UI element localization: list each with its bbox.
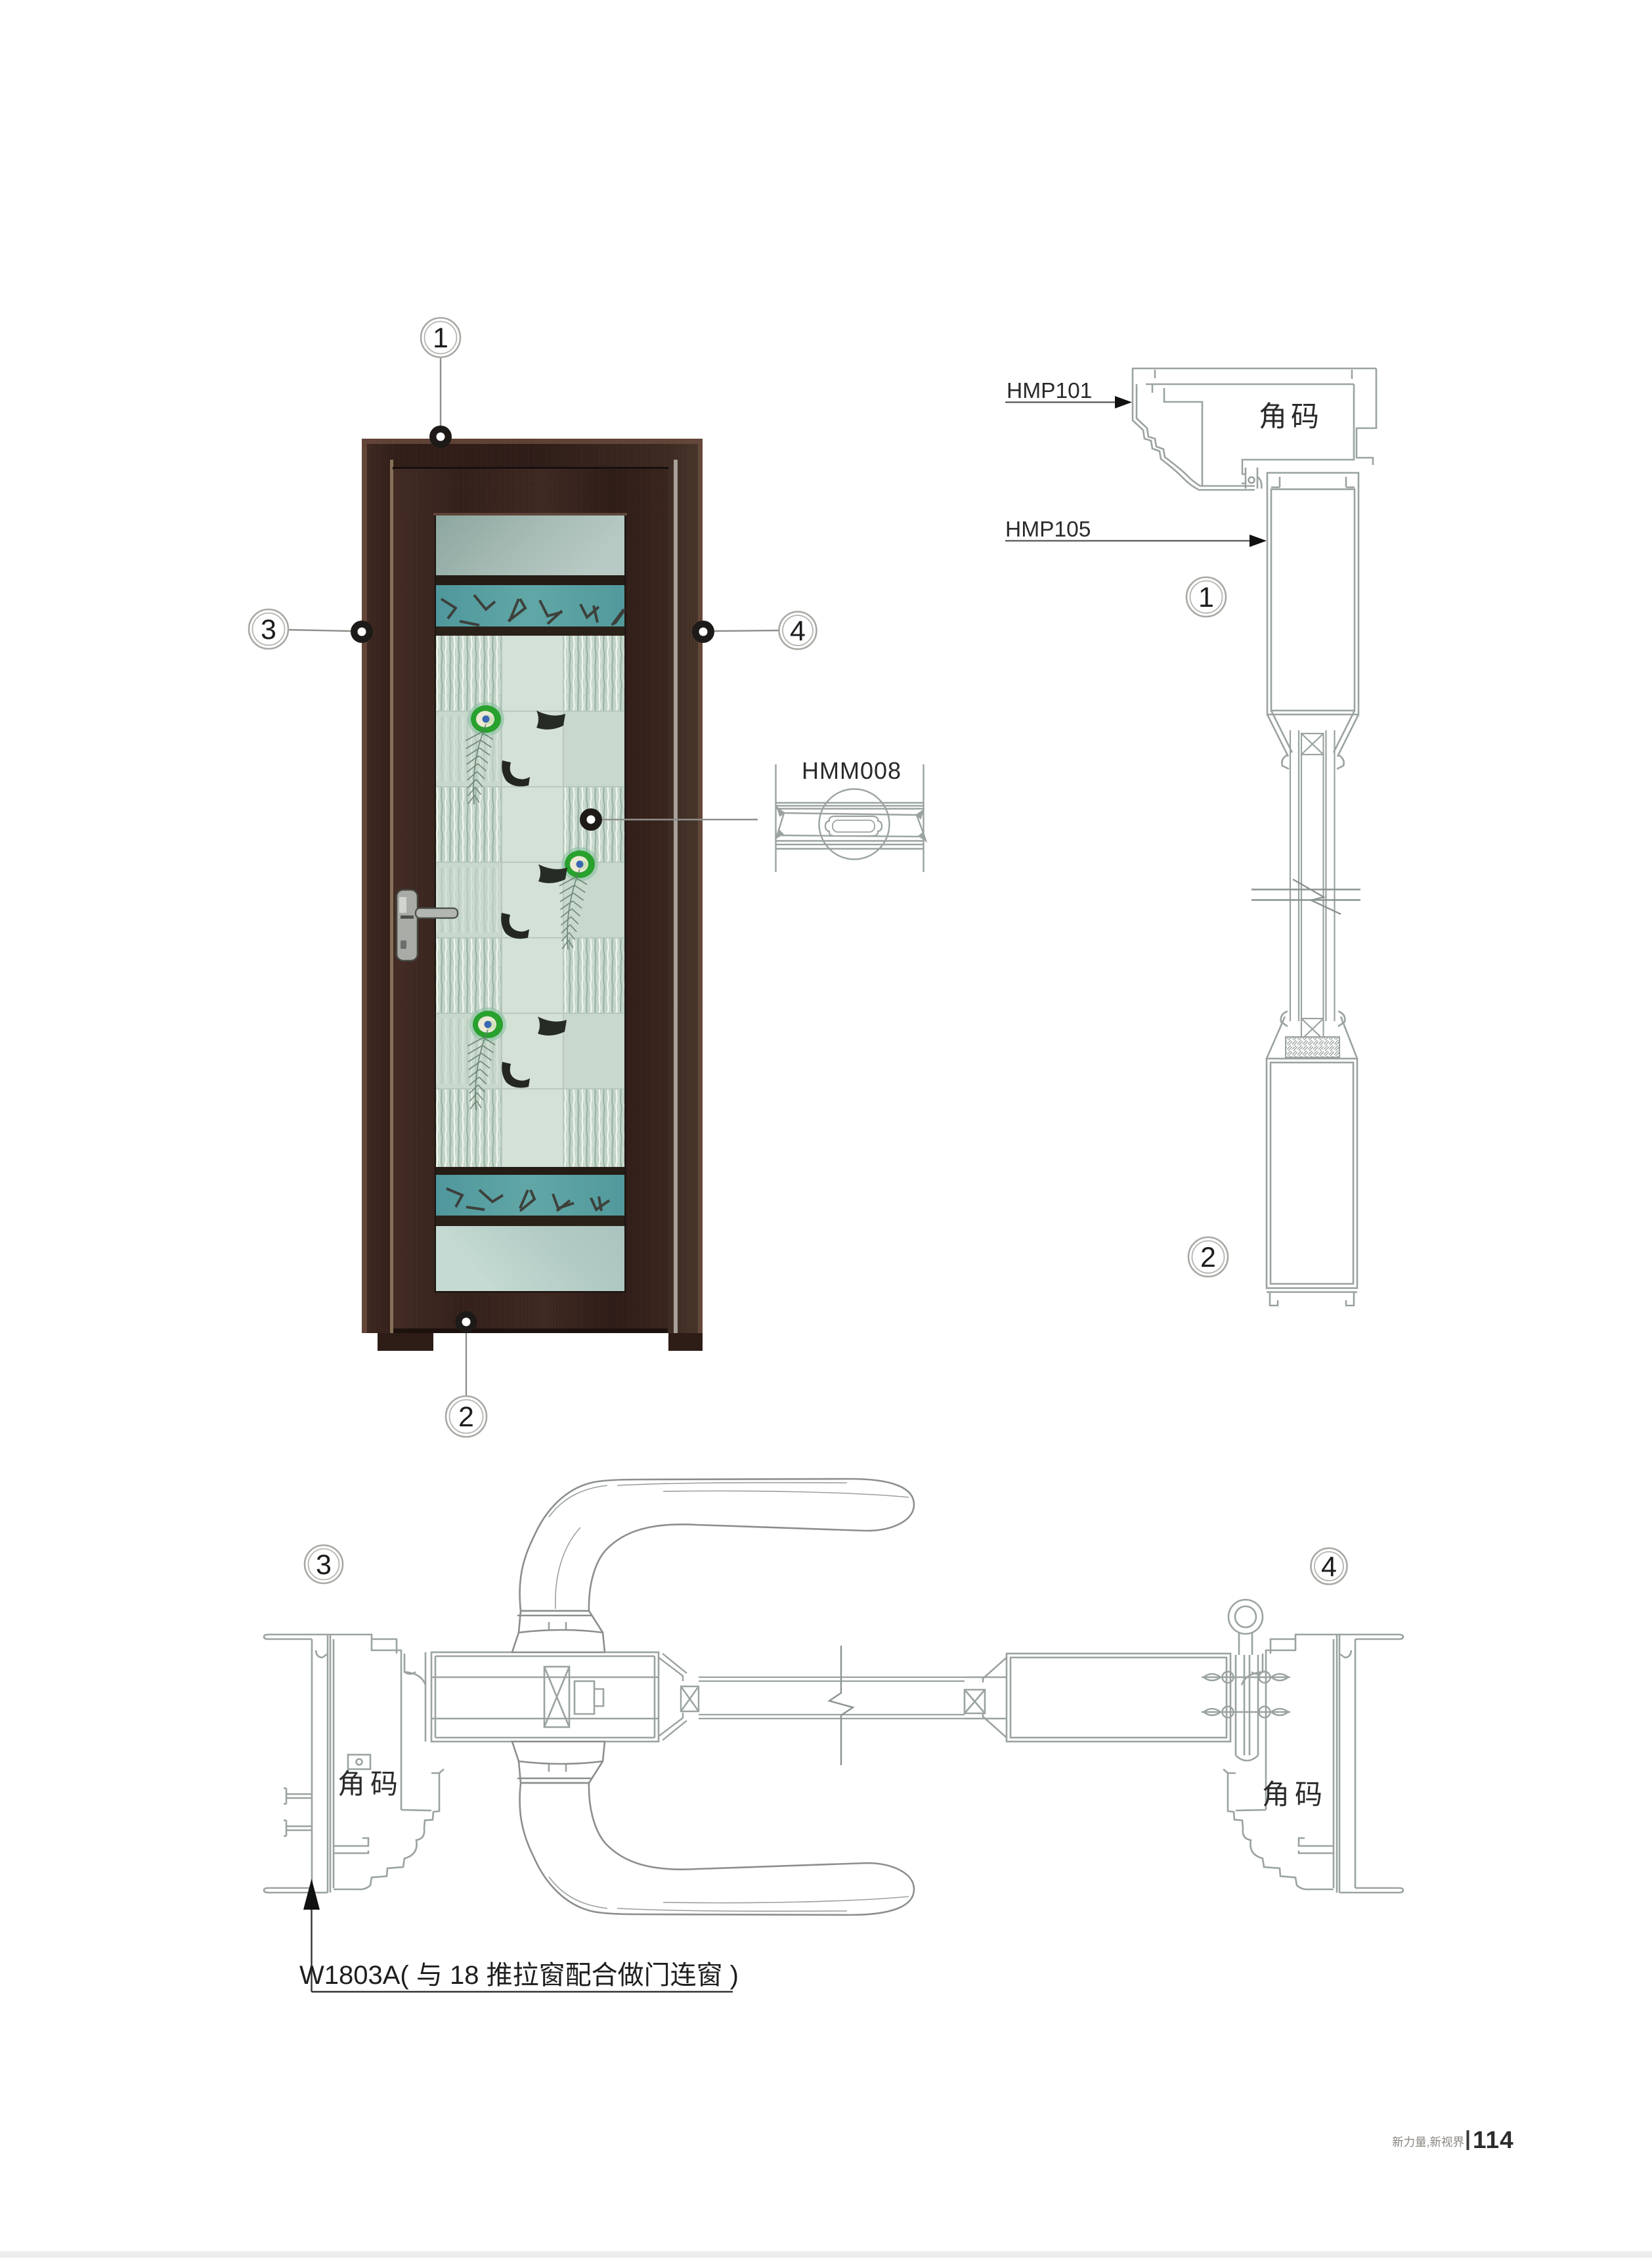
svg-text:1: 1 (433, 322, 448, 354)
svg-text:HMP105: HMP105 (1005, 517, 1091, 542)
svg-text:3: 3 (316, 1549, 332, 1581)
svg-text:3: 3 (261, 614, 276, 646)
svg-text:4: 4 (790, 615, 806, 647)
svg-text:HMP101: HMP101 (1007, 379, 1092, 403)
svg-text:114: 114 (1473, 2126, 1514, 2153)
svg-text:角码: 角码 (337, 1768, 403, 1799)
svg-text:角码: 角码 (1262, 1779, 1328, 1810)
svg-text:2: 2 (458, 1401, 474, 1433)
svg-text:1: 1 (1198, 582, 1214, 613)
svg-text:HMM008: HMM008 (802, 757, 902, 784)
svg-text:2: 2 (1200, 1242, 1216, 1273)
svg-text:4: 4 (1321, 1551, 1337, 1583)
svg-text:W1803A( 与 18 推拉窗配合做门连窗 ): W1803A( 与 18 推拉窗配合做门连窗 ) (299, 1961, 739, 1990)
svg-text:新力量,新视界: 新力量,新视界 (1392, 2136, 1464, 2149)
svg-text:角码: 角码 (1259, 401, 1323, 433)
